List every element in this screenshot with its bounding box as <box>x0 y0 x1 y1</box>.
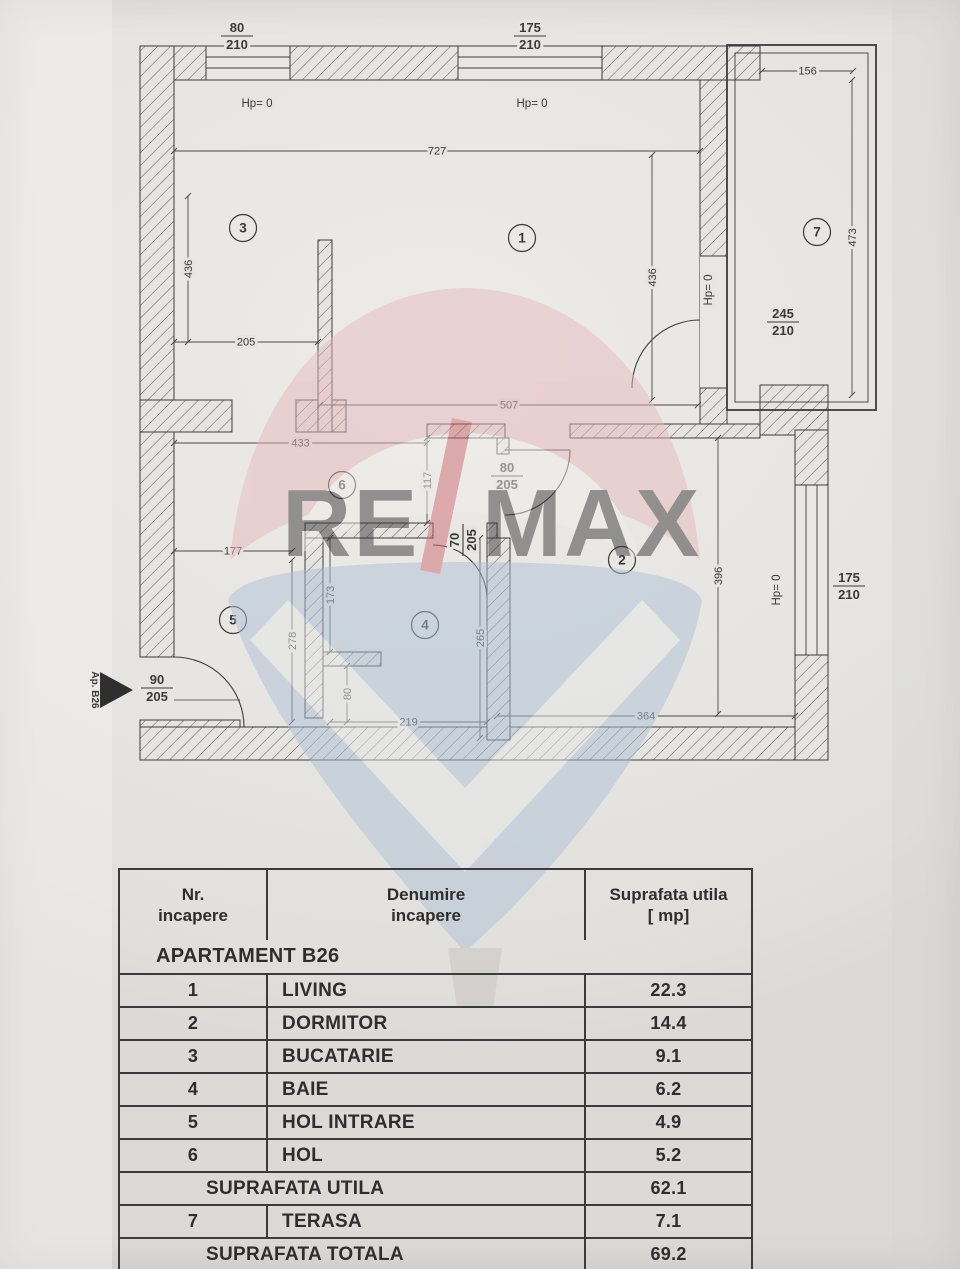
table-row: 2DORMITOR14.4 <box>120 1006 751 1039</box>
room-number-cell: 1 <box>120 975 266 1006</box>
room-number-cell: 4 <box>120 1074 266 1105</box>
room-area-cell: 7.1 <box>584 1206 751 1237</box>
door-size-label: 245210 <box>767 306 799 338</box>
room-area-cell: 9.1 <box>584 1041 751 1072</box>
room-name-cell: LIVING <box>266 975 584 1006</box>
dimension-label: 473 <box>847 228 859 246</box>
entry-arrow-icon <box>100 672 133 708</box>
header-nr-incapere: Nr. incapere <box>120 870 266 940</box>
room-area-cell: 4.9 <box>584 1107 751 1138</box>
room-number-cell: 3 <box>120 1041 266 1072</box>
table-header-row: Nr. incapere Denumire incapere Suprafata… <box>120 870 751 940</box>
total-area-cell: 69.2 <box>584 1239 751 1269</box>
room-number-cell: 6 <box>120 1140 266 1171</box>
hp-label: Hp= 0 <box>241 98 272 110</box>
header-suprafata-utila: Suprafata utila [ mp] <box>584 870 751 940</box>
svg-text:205: 205 <box>146 689 168 704</box>
svg-text:210: 210 <box>838 587 860 602</box>
room-name-cell: BAIE <box>266 1074 584 1105</box>
terrace-parapet <box>727 45 876 410</box>
svg-text:175: 175 <box>519 20 541 35</box>
room-number: 1 <box>518 231 526 246</box>
table-row: 4BAIE6.2 <box>120 1072 751 1105</box>
room-number-cell: 5 <box>120 1107 266 1138</box>
svg-text:210: 210 <box>226 37 248 52</box>
room-name-cell: DORMITOR <box>266 1008 584 1039</box>
page-left-margin <box>0 0 112 1269</box>
table-row: SUPRAFATA UTILA62.1 <box>120 1171 751 1204</box>
hp-label: Hp= 0 <box>771 574 783 605</box>
table-row: APARTAMENT B26 <box>120 940 751 973</box>
table-row: 3BUCATARIE9.1 <box>120 1039 751 1072</box>
terrace-door-arc <box>632 320 700 388</box>
dimension-label: 727 <box>428 146 446 158</box>
section-label-cell: APARTAMENT B26 <box>120 940 751 973</box>
door-size-label: 175210 <box>833 570 865 602</box>
total-area-cell: 62.1 <box>584 1173 751 1204</box>
door-size-label: 70205 <box>447 524 479 556</box>
watermark-max-text: MAX <box>482 470 701 577</box>
svg-text:205: 205 <box>464 529 479 551</box>
svg-text:90: 90 <box>150 672 164 687</box>
room-number-cell: 2 <box>120 1008 266 1039</box>
svg-text:210: 210 <box>519 37 541 52</box>
dimension-label: 436 <box>647 268 659 286</box>
table-body: APARTAMENT B261LIVING22.32DORMITOR14.43B… <box>120 940 751 1269</box>
hp-label: Hp= 0 <box>516 98 547 110</box>
dimension-label: 205 <box>237 337 255 349</box>
dimension-label: 156 <box>798 66 816 78</box>
door-size-label: 90205 <box>141 672 173 704</box>
dimension-label: 396 <box>713 567 725 585</box>
watermark-re-text: RE <box>282 470 419 577</box>
window-kitchen <box>206 46 290 80</box>
window-bedroom <box>795 485 828 655</box>
svg-text:210: 210 <box>772 323 794 338</box>
dimension-label: 436 <box>183 260 195 278</box>
total-label-cell: SUPRAFATA UTILA <box>120 1173 584 1204</box>
room-number: 3 <box>239 221 247 236</box>
room-area-cell: 6.2 <box>584 1074 751 1105</box>
total-label-cell: SUPRAFATA TOTALA <box>120 1239 584 1269</box>
entry-apartment-label: Ap. B26 <box>89 671 100 709</box>
room-areas-table: Nr. incapere Denumire incapere Suprafata… <box>118 868 753 1269</box>
room-number: 7 <box>813 225 821 240</box>
table-row: 7TERASA7.1 <box>120 1204 751 1237</box>
svg-text:70: 70 <box>447 533 462 547</box>
svg-text:245: 245 <box>772 306 794 321</box>
table-row: SUPRAFATA TOTALA69.2 <box>120 1237 751 1269</box>
room-number-cell: 7 <box>120 1206 266 1237</box>
svg-text:80: 80 <box>230 20 244 35</box>
room-area-cell: 5.2 <box>584 1140 751 1171</box>
page-right-margin <box>892 0 960 1269</box>
hp-label: Hp= 0 <box>703 274 715 305</box>
svg-text:175: 175 <box>838 570 860 585</box>
table-row: 1LIVING22.3 <box>120 973 751 1006</box>
scanned-floor-plan-page: Ap. B26 72720515650743317721936443643647… <box>0 0 960 1269</box>
room-name-cell: HOL <box>266 1140 584 1171</box>
room-name-cell: TERASA <box>266 1206 584 1237</box>
room-area-cell: 14.4 <box>584 1008 751 1039</box>
table-row: 6HOL5.2 <box>120 1138 751 1171</box>
entry-door-arc <box>174 657 244 727</box>
room-name-cell: HOL INTRARE <box>266 1107 584 1138</box>
room-area-cell: 22.3 <box>584 975 751 1006</box>
table-row: 5HOL INTRARE4.9 <box>120 1105 751 1138</box>
header-denumire-incapere: Denumire incapere <box>266 870 584 940</box>
room-name-cell: BUCATARIE <box>266 1041 584 1072</box>
